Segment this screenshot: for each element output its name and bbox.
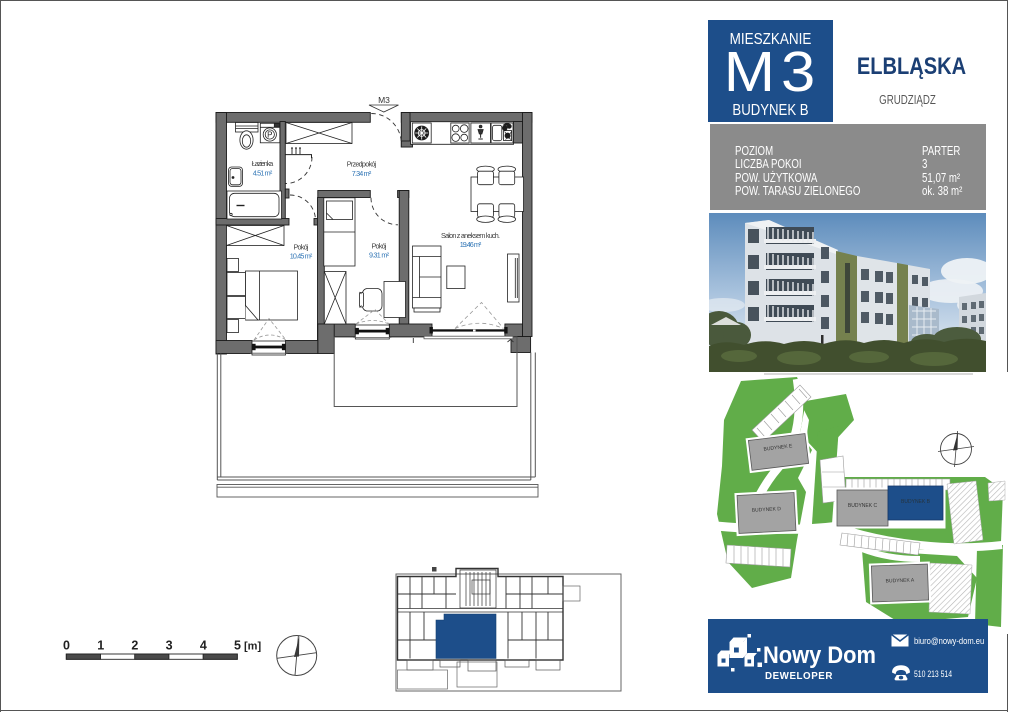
svg-text:7.34 m²: 7.34 m² (352, 169, 372, 178)
svg-text:0: 0 (63, 639, 70, 653)
svg-text:10.45 m²: 10.45 m² (290, 252, 313, 261)
svg-text:1: 1 (97, 639, 104, 653)
svg-text:3: 3 (166, 639, 173, 653)
svg-text:19.46 m²: 19.46 m² (460, 240, 482, 249)
svg-text:BUDYNEK B: BUDYNEK B (901, 499, 931, 505)
svg-text:4: 4 (200, 639, 207, 653)
svg-text:[m]: [m] (244, 641, 261, 653)
svg-text:BUDYNEK C: BUDYNEK C (848, 503, 878, 509)
svg-text:Salon z aneksem kuch.: Salon z aneksem kuch. (441, 231, 500, 240)
svg-text:5: 5 (234, 639, 241, 653)
svg-text:Pokój: Pokój (294, 243, 309, 252)
svg-text:M3: M3 (378, 95, 390, 105)
svg-text:P: P (267, 131, 272, 140)
svg-text:4.51 m²: 4.51 m² (253, 169, 273, 178)
svg-text:Pokój: Pokój (372, 242, 387, 251)
svg-text:Łazienka: Łazienka (252, 159, 274, 168)
svg-text:2: 2 (131, 639, 138, 653)
svg-text:Przedpokój: Przedpokój (347, 160, 377, 169)
svg-text:9.31 m²: 9.31 m² (369, 251, 390, 260)
svg-text:BUDYNEK A: BUDYNEK A (886, 577, 915, 584)
